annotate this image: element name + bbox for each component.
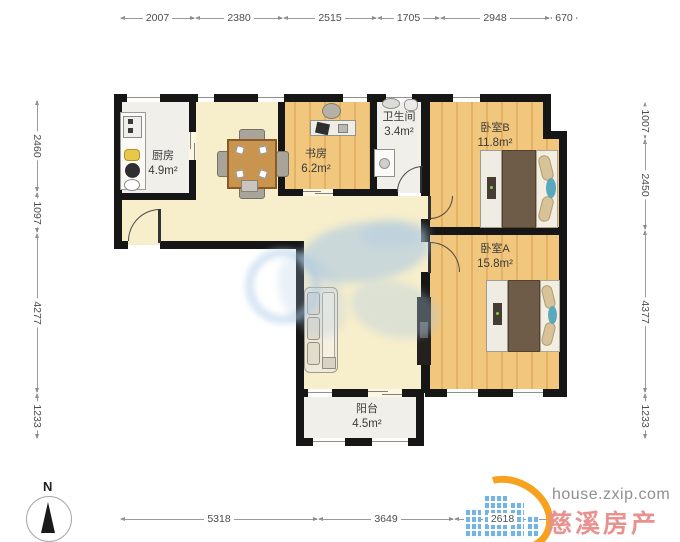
dimension-left-2: 4277 (30, 233, 44, 393)
monitor-icon (315, 122, 330, 135)
room-area: 11.8m² (478, 136, 513, 152)
dimension-value: 1705 (394, 12, 423, 24)
window (308, 389, 332, 397)
room-name: 卧室B (478, 121, 513, 136)
side-table (322, 357, 336, 369)
window (127, 94, 160, 102)
dimension-value: 1007 (639, 106, 651, 135)
window (447, 389, 478, 397)
washbasin-icon (382, 98, 400, 109)
pot-icon (125, 163, 140, 178)
logo-building-icon (526, 516, 539, 538)
kitchen-sink-icon (124, 149, 140, 161)
wall-segment (421, 227, 567, 235)
dimension-top-0: 2007 (120, 11, 195, 25)
compass-needle-icon (41, 502, 55, 533)
compass-north-label: N (43, 479, 52, 494)
printer-icon (338, 124, 348, 133)
wall-segment (278, 94, 285, 193)
dimension-bottom-0: 5318 (120, 512, 318, 526)
wall-segment (296, 389, 308, 397)
wall-segment (114, 193, 196, 200)
dimension-right-3: 1233 (638, 393, 652, 439)
dimension-value: 1233 (639, 401, 651, 430)
dimension-top-3: 1705 (377, 11, 440, 25)
bed-accent (548, 306, 557, 324)
room-name: 卫生间 (383, 110, 416, 125)
room-label-bathroom: 卫生间 3.4m² (383, 110, 416, 140)
stove-knob-icon (128, 119, 133, 124)
dimension-right-0: 1007 (638, 102, 652, 139)
wall-segment (332, 389, 368, 397)
window (372, 438, 408, 446)
dimension-value: 4277 (31, 298, 43, 327)
wall-segment (370, 94, 377, 196)
window (343, 94, 367, 102)
compass: N (18, 479, 82, 541)
entry-door-leaf (158, 209, 161, 243)
window (198, 94, 214, 102)
stove-knob-icon (128, 128, 133, 133)
room-area: 15.8m² (477, 257, 513, 273)
dimension-value: 1233 (31, 401, 43, 430)
kitchen-sliding-door (189, 132, 196, 160)
dimension-right-2: 4377 (638, 230, 652, 393)
room-area: 4.9m² (148, 164, 177, 180)
dimension-value: 4377 (639, 297, 651, 326)
wall-segment (402, 389, 424, 397)
watermark-site-name: 慈溪房产网 (547, 504, 680, 542)
wall-segment (189, 94, 196, 132)
dimension-value: 2948 (480, 12, 509, 24)
dimension-top-4: 2948 (440, 11, 550, 25)
dimension-left-3: 1233 (30, 393, 44, 439)
room-label-bedroom-a: 卧室A 15.8m² (477, 242, 513, 272)
hall-cabinet (241, 180, 258, 192)
dimension-left-0: 2460 (30, 100, 44, 192)
dimension-top-1: 2380 (195, 11, 283, 25)
study-sliding-door (303, 189, 333, 196)
logo-building-icon (464, 508, 481, 538)
washer-drum-icon (379, 158, 390, 169)
window (258, 94, 284, 102)
dimension-right-1: 2450 (638, 139, 652, 230)
wall-segment (278, 189, 303, 196)
dimension-value: 3649 (371, 513, 400, 525)
room-label-balcony: 阳台 4.5m² (352, 402, 381, 432)
sofa-cushion (307, 342, 320, 365)
bed-blanket (502, 150, 536, 228)
plate-icon (258, 145, 267, 154)
dimension-left-1: 1097 (30, 192, 44, 233)
room-name: 厨房 (148, 149, 177, 164)
desk-chair (322, 103, 341, 119)
plate-icon (235, 169, 244, 178)
indicator-dot (490, 186, 493, 189)
wall-segment (370, 189, 398, 196)
dimension-value: 2515 (315, 12, 344, 24)
wall-segment (559, 131, 567, 397)
dimension-value: 2007 (143, 12, 172, 24)
basin-icon (124, 179, 140, 191)
bedroom-b-door-leaf (428, 196, 431, 220)
dimension-value: 2380 (224, 12, 253, 24)
room-label-bedroom-b: 卧室B 11.8m² (478, 121, 513, 151)
watermark-url: house.zxip.com (552, 486, 670, 504)
indicator-dot (496, 312, 499, 315)
dimension-value: 670 (552, 12, 576, 24)
bed-blanket (508, 280, 540, 352)
room-label-kitchen: 厨房 4.9m² (148, 149, 177, 179)
window (313, 438, 345, 446)
dimension-top-5: 670 (550, 11, 578, 25)
window (453, 94, 480, 102)
wall-segment (114, 94, 551, 102)
dimension-top-2: 2515 (283, 11, 377, 25)
dimension-bottom-1: 3649 (318, 512, 454, 526)
room-name: 阳台 (352, 402, 381, 417)
room-area: 3.4m² (383, 125, 416, 141)
room-name: 卧室A (477, 242, 513, 257)
dimension-value: 1097 (31, 198, 43, 227)
room-label-study: 书房 6.2m² (301, 147, 330, 177)
bed-accent (546, 178, 556, 198)
dimension-value: 5318 (204, 513, 233, 525)
dining-chair (276, 151, 289, 177)
room-name: 书房 (301, 147, 330, 162)
room-area: 6.2m² (301, 162, 330, 178)
dimension-value: 2460 (31, 131, 43, 160)
balcony-sliding-door (368, 389, 402, 397)
bathroom-door-leaf (420, 166, 422, 193)
dimension-value: 2450 (639, 170, 651, 199)
room-area: 4.5m² (352, 417, 381, 433)
window (513, 389, 543, 397)
dimension-value: 2618 (488, 513, 517, 525)
floorplan-canvas: 厨房 4.9m² 书房 6.2m² 卫生间 3.4m² 卧室B 11.8m² 卧… (0, 0, 680, 542)
site-watermark: house.zxip.com 慈溪房产网 (455, 476, 680, 542)
